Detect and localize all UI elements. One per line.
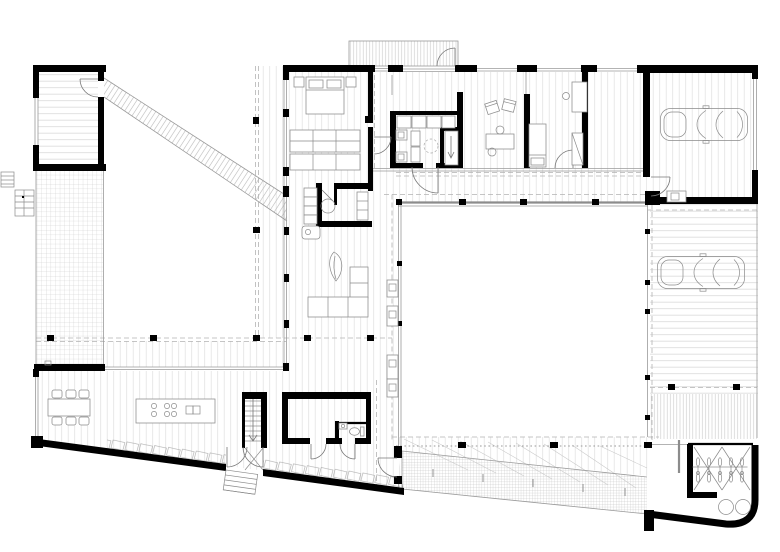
master-bedroom-wall bbox=[368, 127, 373, 191]
duct-shaft bbox=[445, 131, 458, 165]
desk bbox=[486, 134, 514, 149]
laundry-unit bbox=[302, 226, 320, 239]
shower-tray bbox=[411, 131, 420, 146]
west-pier bbox=[33, 369, 39, 377]
column bbox=[150, 335, 157, 341]
column-dot bbox=[645, 280, 650, 285]
storage-wall-n bbox=[282, 392, 371, 399]
dining-table bbox=[48, 399, 90, 416]
south-canopy-deck bbox=[650, 394, 757, 439]
column bbox=[253, 335, 260, 341]
facade-pier bbox=[283, 186, 289, 197]
kitchen-unit bbox=[387, 306, 398, 326]
stair-wall-e bbox=[261, 392, 267, 448]
shelf-unit bbox=[304, 215, 317, 224]
bath-wall-n bbox=[392, 111, 463, 115]
wardrobe bbox=[290, 154, 360, 170]
column bbox=[733, 384, 740, 390]
storage-wall-s bbox=[282, 438, 310, 444]
column-dot bbox=[397, 261, 402, 266]
pillow bbox=[327, 80, 341, 88]
column bbox=[304, 335, 311, 341]
nightstand bbox=[346, 77, 356, 87]
garage-wall-e bbox=[752, 170, 758, 202]
pillow bbox=[531, 158, 544, 165]
wc-sink bbox=[339, 423, 347, 429]
garden-step-dot bbox=[22, 196, 24, 198]
washbasin bbox=[412, 116, 426, 128]
nightstand bbox=[294, 77, 304, 87]
column bbox=[396, 199, 402, 205]
north-facade-wall bbox=[388, 65, 403, 72]
driveway-deck bbox=[650, 204, 758, 394]
entry-step-line bbox=[225, 475, 257, 479]
toilet-tank bbox=[396, 130, 407, 140]
dining-chair bbox=[52, 417, 62, 425]
north-facade-wall bbox=[455, 65, 477, 72]
stair-wall-w bbox=[242, 392, 245, 448]
facade-pier bbox=[283, 109, 289, 117]
water-heater bbox=[667, 191, 686, 202]
column-dot bbox=[645, 415, 650, 420]
bicycle bbox=[715, 458, 726, 483]
facade-pier bbox=[284, 320, 289, 328]
column bbox=[459, 199, 466, 205]
storage-partition bbox=[335, 421, 339, 444]
se-corner-wall bbox=[648, 445, 755, 524]
dining-chair bbox=[79, 417, 89, 425]
column bbox=[592, 199, 599, 205]
column bbox=[668, 384, 675, 390]
door-frame bbox=[365, 116, 373, 123]
exterior-vent bbox=[1, 172, 14, 187]
waste-bin bbox=[736, 500, 751, 515]
shelf-unit bbox=[304, 206, 317, 215]
bicycle bbox=[737, 458, 748, 483]
column bbox=[458, 442, 466, 448]
shower-tray bbox=[411, 147, 420, 162]
column bbox=[550, 442, 558, 448]
sofa-chaise bbox=[350, 267, 368, 298]
column bbox=[367, 335, 374, 341]
storage-wall-s bbox=[326, 438, 342, 444]
shelf-unit bbox=[304, 188, 317, 197]
floor-plan-svg bbox=[0, 0, 780, 552]
north-facade-wall bbox=[581, 65, 597, 72]
veranda-deck bbox=[104, 341, 286, 367]
lounge-chair bbox=[502, 99, 516, 113]
bath-shelf bbox=[357, 192, 368, 220]
column bbox=[520, 199, 527, 205]
column bbox=[644, 442, 652, 448]
bicycle bbox=[693, 458, 704, 483]
north-facade-wall bbox=[517, 65, 537, 72]
garage-wall-e bbox=[752, 65, 758, 79]
storage-wall-w bbox=[282, 392, 288, 444]
bike-room-wall-s bbox=[687, 492, 717, 498]
column bbox=[253, 227, 260, 233]
waste-bin bbox=[719, 500, 734, 515]
garage-wall-s bbox=[648, 197, 758, 204]
guest-wall-w bbox=[33, 65, 39, 98]
column-dot bbox=[645, 309, 650, 314]
closet-wall bbox=[440, 127, 444, 168]
facade-pier bbox=[283, 167, 289, 176]
facade-pier bbox=[284, 274, 289, 282]
master-bath-wall bbox=[316, 221, 372, 227]
guest-room-floor bbox=[38, 72, 98, 164]
guest-wall-e bbox=[98, 97, 104, 171]
column bbox=[47, 335, 54, 341]
north-walkway-deck bbox=[397, 170, 647, 203]
column bbox=[394, 446, 402, 458]
kitchen-island bbox=[136, 399, 215, 423]
dining-chair bbox=[66, 390, 76, 398]
dining-chair bbox=[79, 390, 89, 398]
guest-wall-e bbox=[98, 65, 104, 81]
storage-wall-e bbox=[366, 392, 371, 444]
wall-endcap bbox=[644, 510, 654, 531]
pillow bbox=[309, 80, 323, 88]
column bbox=[253, 117, 259, 124]
washbasin bbox=[442, 116, 455, 128]
master-bath-wall bbox=[334, 183, 372, 189]
garage-wall-n bbox=[637, 65, 758, 73]
facade-pier bbox=[284, 227, 289, 235]
dining-chair bbox=[52, 390, 62, 398]
garage-wall-w bbox=[643, 65, 650, 177]
kitchen-unit bbox=[387, 379, 398, 397]
shelf-unit bbox=[304, 197, 317, 206]
entry-step-line bbox=[225, 480, 257, 484]
entry-step-line bbox=[224, 485, 256, 489]
floor-plan-page bbox=[0, 0, 780, 552]
washbasin bbox=[427, 116, 441, 128]
facade-pier bbox=[283, 70, 289, 80]
wc-toilet bbox=[350, 427, 365, 436]
guest-wall-n bbox=[33, 65, 106, 72]
column-dot bbox=[645, 229, 650, 234]
sofa bbox=[308, 297, 368, 317]
kitchen-unit bbox=[387, 280, 398, 297]
bath-wall-s bbox=[390, 163, 423, 168]
garden-steps bbox=[15, 190, 34, 216]
column-dot bbox=[645, 375, 650, 380]
guest-wall-s bbox=[33, 164, 106, 171]
west-terrace-paving bbox=[36, 171, 103, 365]
facade-pier bbox=[283, 363, 289, 371]
master-bedroom-wall bbox=[368, 72, 373, 117]
desk bbox=[572, 82, 587, 112]
north-facade-wall bbox=[283, 65, 375, 72]
dining-chair bbox=[66, 417, 76, 425]
washbasin bbox=[397, 116, 411, 128]
toilet-tank bbox=[396, 152, 407, 162]
bike-room-wall-w bbox=[687, 444, 693, 498]
entry-step-line bbox=[223, 490, 255, 494]
